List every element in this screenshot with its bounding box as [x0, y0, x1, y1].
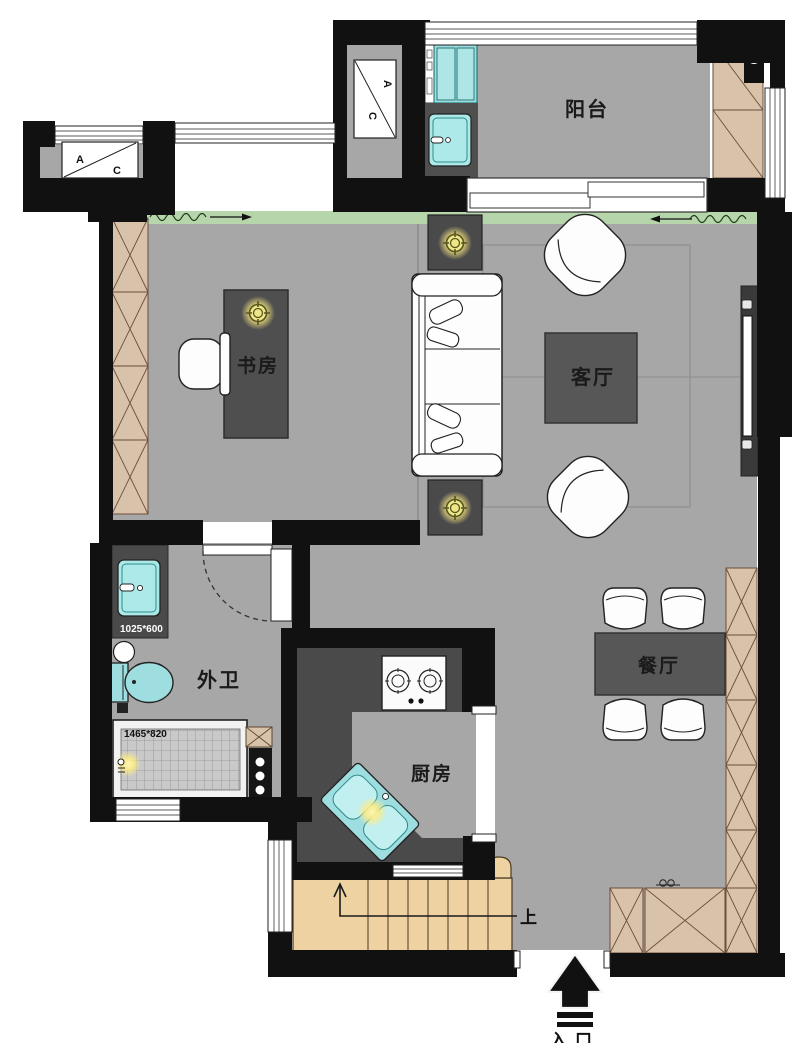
balcony-cabinet [713, 43, 764, 178]
kitchen-label: 厨房 [411, 762, 453, 785]
wall-segment [333, 20, 347, 180]
wall-segment [281, 628, 495, 648]
chair-seat [179, 339, 223, 389]
ceiling-light-icon [438, 226, 472, 260]
faucet-icon [446, 138, 451, 143]
faucet-icon [137, 585, 142, 590]
living-label: 客厅 [570, 365, 615, 389]
door-opening [476, 712, 494, 836]
floor-plan: 书房 客厅 [0, 0, 804, 1043]
wall-segment [333, 178, 410, 212]
balcony-label: 阳台 [565, 97, 609, 121]
ac-label-a: A [381, 80, 393, 88]
sofa [412, 274, 502, 476]
window [175, 123, 335, 143]
wall-segment [758, 435, 780, 977]
ac-label-c: C [366, 112, 378, 120]
ac-platform-top: A C [354, 60, 396, 138]
washer-door [437, 48, 455, 100]
wall-segment [99, 210, 113, 543]
partition-dot [256, 758, 265, 767]
wall-segment [268, 820, 292, 842]
dining-chair [603, 588, 647, 629]
tv-unit [741, 286, 758, 476]
chair-back [220, 333, 230, 395]
wall-segment [610, 953, 785, 977]
ac-label-c: C [113, 165, 121, 177]
wall-segment [90, 543, 112, 797]
room-kitchen: 厨房 [297, 648, 478, 868]
window [116, 799, 180, 821]
washer-door [457, 48, 474, 100]
floor-drain [114, 642, 135, 663]
entry-cabinets [610, 880, 725, 953]
stove [382, 656, 446, 710]
floor-plan-drawing: 书房 客厅 [0, 0, 804, 1043]
tv-bracket [742, 440, 752, 449]
washing-machine [425, 45, 477, 103]
ceiling-light-icon [241, 296, 275, 330]
wall-segment [408, 176, 470, 212]
wall-segment [402, 45, 425, 178]
desk-chair [179, 333, 230, 395]
sofa-armrest [412, 454, 502, 476]
shower-area: 1465*820 [113, 720, 247, 798]
wall-segment [757, 212, 792, 437]
faucet-icon [120, 584, 134, 591]
wall-segment [292, 545, 310, 630]
stove-top [382, 656, 446, 710]
wall-segment [272, 520, 420, 545]
dining-chair [661, 699, 705, 740]
wall-segment [463, 836, 495, 880]
door-jamb [472, 834, 496, 842]
ac-platform-left: A C [62, 142, 138, 178]
study-label: 书房 [237, 354, 279, 377]
shower-head-icon [118, 759, 124, 765]
stove-knob [418, 698, 423, 703]
faucet-icon [431, 137, 443, 143]
stove-knob [408, 698, 413, 703]
window [425, 22, 697, 45]
ceiling-light-icon [438, 491, 472, 525]
shower-dimension: 1465*820 [124, 729, 167, 740]
dining-sideboard [726, 568, 757, 953]
wall-segment [462, 648, 495, 712]
window [393, 865, 463, 877]
door-leaf [203, 545, 272, 555]
wall-segment [333, 20, 430, 45]
sliding-door [467, 178, 707, 212]
tv-screen [743, 316, 752, 436]
window [268, 840, 292, 932]
partition-dot [256, 772, 265, 781]
door-jamb [604, 951, 610, 968]
door-jamb [472, 706, 496, 714]
drain-box [117, 703, 128, 713]
entrance-bar [557, 1022, 593, 1027]
vanity-dimension: 1025*600 [120, 624, 163, 635]
window [765, 88, 785, 198]
stairs-up-label: 上 [520, 908, 537, 927]
wall-segment [770, 40, 785, 92]
sliding-door-panel [470, 193, 590, 208]
wall-segment [99, 520, 203, 545]
wall-segment [268, 950, 517, 977]
wall-segment [23, 121, 55, 147]
sliding-door-panel [588, 182, 704, 197]
window [55, 126, 143, 144]
wall-segment [88, 197, 147, 222]
dining-chair [603, 699, 647, 740]
wall-segment [23, 147, 40, 178]
dining-chair [661, 588, 705, 629]
light-glow [357, 797, 387, 827]
sofa-armrest [412, 274, 502, 296]
ac-label-a: A [76, 154, 84, 166]
toilet [111, 663, 173, 703]
toilet-flush [132, 680, 136, 684]
partition-dot [256, 786, 265, 795]
entrance-bar [557, 1012, 593, 1018]
dining-label: 餐厅 [638, 654, 680, 677]
door-jamb [514, 951, 520, 968]
bathroom-label: 外卫 [197, 668, 241, 692]
entrance-label: 入口 [550, 1031, 600, 1043]
study-wardrobe [112, 218, 148, 514]
tv-bracket [742, 300, 752, 309]
door-jamb [271, 549, 292, 621]
